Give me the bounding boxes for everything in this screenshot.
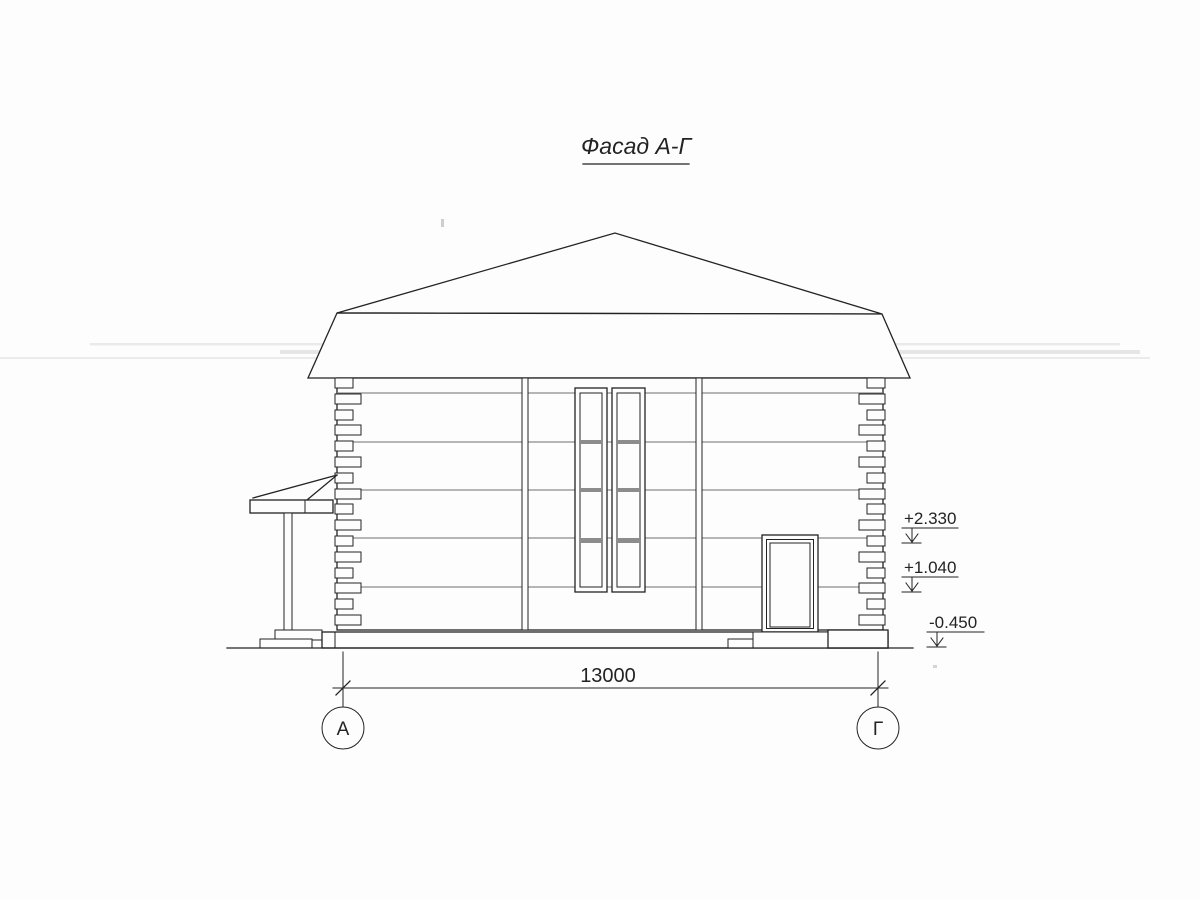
axis-bubble-left: А — [322, 707, 364, 749]
elevation-mark-lower: -0.450 — [927, 613, 984, 647]
porch-post — [284, 513, 292, 630]
axis-label-g: Г — [873, 719, 883, 740]
window-left — [575, 388, 607, 592]
window-right — [612, 388, 645, 592]
elevation-mark-upper: +2.330 — [902, 509, 958, 543]
elevation-value-upper: +2.330 — [904, 509, 956, 528]
facade-drawing-sheet: Фасад А-Г — [0, 0, 1200, 900]
roof-ridge-triangle — [337, 233, 882, 314]
axis-label-a: А — [337, 719, 350, 740]
facade-elevation-canvas: Фасад А-Г — [0, 0, 1200, 900]
porch-canopy — [250, 475, 337, 513]
dimension-line: 13000 — [333, 652, 888, 706]
axis-bubble-right: Г — [857, 707, 899, 749]
elevation-mark-middle: +1.040 — [902, 558, 958, 592]
roof — [308, 233, 910, 378]
drawing-title: Фасад А-Г — [581, 133, 692, 159]
porch-steps — [260, 630, 322, 648]
dimension-value: 13000 — [580, 665, 636, 687]
entrance-door — [762, 535, 818, 632]
elevation-value-lower: -0.450 — [929, 613, 977, 632]
wall-post-left — [522, 378, 528, 630]
elevation-value-middle: +1.040 — [904, 558, 956, 577]
roof-eaves-fascia — [308, 313, 910, 378]
wall-post-right — [696, 378, 702, 630]
